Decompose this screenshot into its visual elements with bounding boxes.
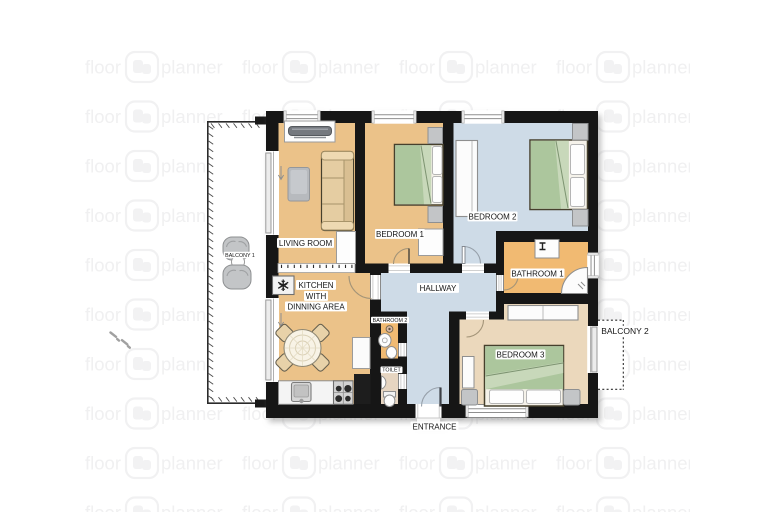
svg-text:floor: floor bbox=[85, 403, 121, 424]
svg-text:planner: planner bbox=[475, 453, 537, 474]
svg-text:floor: floor bbox=[85, 453, 121, 474]
svg-text:ENTRANCE: ENTRANCE bbox=[412, 422, 456, 431]
svg-text:planner: planner bbox=[632, 205, 694, 226]
svg-text:floor: floor bbox=[242, 57, 278, 78]
svg-text:planner: planner bbox=[632, 453, 694, 474]
svg-text:BEDROOM 2: BEDROOM 2 bbox=[468, 212, 517, 221]
svg-text:DINNING AREA: DINNING AREA bbox=[287, 302, 345, 311]
svg-text:planner: planner bbox=[318, 453, 380, 474]
svg-text:planner: planner bbox=[161, 57, 223, 78]
svg-text:floor: floor bbox=[556, 453, 592, 474]
svg-text:floor: floor bbox=[399, 502, 435, 512]
svg-text:planner: planner bbox=[161, 453, 223, 474]
svg-text:floor: floor bbox=[85, 57, 121, 78]
svg-text:floor: floor bbox=[85, 502, 121, 512]
svg-text:planner: planner bbox=[632, 354, 694, 375]
svg-text:WITH: WITH bbox=[306, 292, 327, 301]
svg-text:floor: floor bbox=[85, 354, 121, 375]
svg-text:planner: planner bbox=[161, 502, 223, 512]
svg-text:LIVING ROOM: LIVING ROOM bbox=[279, 239, 333, 248]
svg-text:floor: floor bbox=[556, 502, 592, 512]
svg-text:floor: floor bbox=[85, 205, 121, 226]
svg-text:planner: planner bbox=[632, 255, 694, 276]
svg-text:KITCHEN: KITCHEN bbox=[298, 281, 333, 290]
svg-text:planner: planner bbox=[318, 57, 380, 78]
svg-text:floor: floor bbox=[85, 304, 121, 325]
svg-text:BALCONY 1: BALCONY 1 bbox=[225, 253, 255, 259]
svg-text:floor: floor bbox=[85, 255, 121, 276]
svg-text:BEDROOM 1: BEDROOM 1 bbox=[376, 230, 425, 239]
svg-text:planner: planner bbox=[161, 403, 223, 424]
svg-text:floor: floor bbox=[399, 453, 435, 474]
svg-text:TOILET: TOILET bbox=[382, 368, 401, 374]
svg-text:floor: floor bbox=[242, 502, 278, 512]
svg-text:planner: planner bbox=[632, 403, 694, 424]
svg-text:floor: floor bbox=[85, 156, 121, 177]
svg-text:floor: floor bbox=[556, 57, 592, 78]
svg-text:BATHROOM 1: BATHROOM 1 bbox=[511, 269, 564, 278]
svg-text:floor: floor bbox=[85, 106, 121, 127]
svg-text:planner: planner bbox=[475, 57, 537, 78]
svg-text:planner: planner bbox=[475, 502, 537, 512]
svg-text:planner: planner bbox=[632, 156, 694, 177]
svg-text:BALCONY 2: BALCONY 2 bbox=[601, 326, 649, 336]
svg-text:HALLWAY: HALLWAY bbox=[420, 284, 457, 293]
svg-text:floor: floor bbox=[242, 453, 278, 474]
svg-text:BATHROOM 2: BATHROOM 2 bbox=[373, 318, 408, 324]
svg-text:planner: planner bbox=[632, 57, 694, 78]
svg-text:planner: planner bbox=[632, 502, 694, 512]
svg-text:floor: floor bbox=[399, 57, 435, 78]
svg-text:planner: planner bbox=[318, 502, 380, 512]
svg-text:planner: planner bbox=[632, 304, 694, 325]
svg-text:planner: planner bbox=[632, 106, 694, 127]
svg-text:BEDROOM 3: BEDROOM 3 bbox=[496, 350, 545, 359]
